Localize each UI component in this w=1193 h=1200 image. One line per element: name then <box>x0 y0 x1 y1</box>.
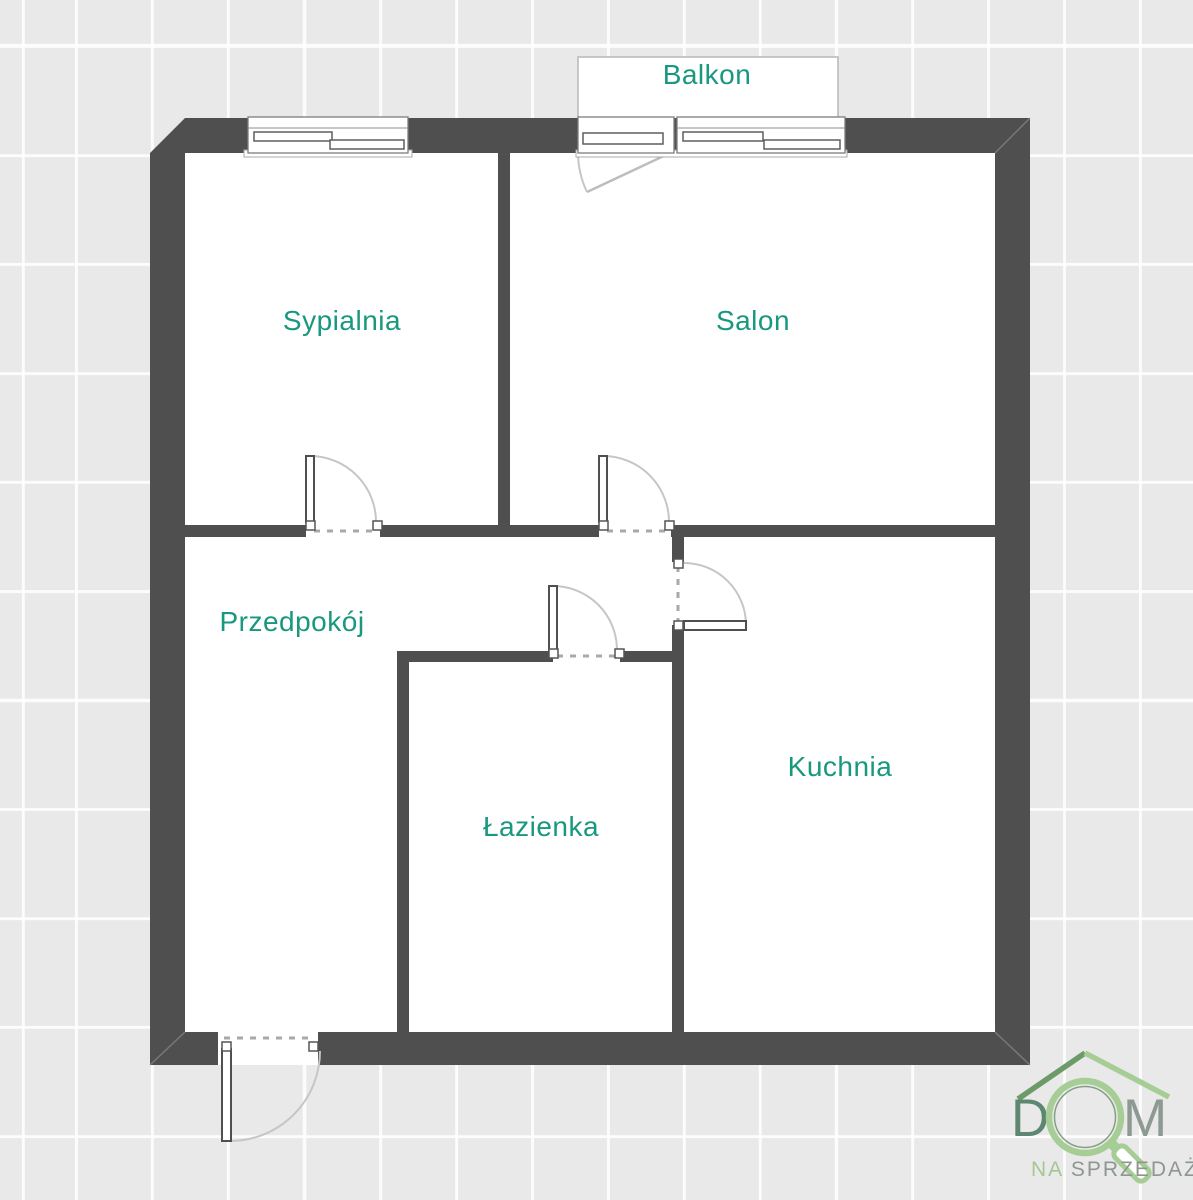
bedroom-window <box>244 117 412 157</box>
logo-tagline-rest: SPRZEDAŻ <box>1071 1158 1193 1181</box>
logo-tagline-na: NA <box>1031 1158 1063 1181</box>
logo-letter-m: M <box>1123 1089 1167 1148</box>
interior-floor <box>185 153 995 1032</box>
floorplan-canvas: Balkon Sypialnia Salon Przedpokój Łazien… <box>0 0 1193 1200</box>
room-label-kuchnia: Kuchnia <box>788 751 893 783</box>
bathroom-door-leaf <box>549 586 557 652</box>
room-label-przedpokoj: Przedpokój <box>219 606 364 638</box>
kitchen-door-leaf <box>684 621 746 630</box>
agency-logo: D M NA SPRZEDAŻ <box>1005 1040 1193 1200</box>
bedroom-door-leaf <box>306 456 314 522</box>
room-label-sypialnia: Sypialnia <box>283 305 401 337</box>
entrance-door-leaf <box>222 1049 231 1141</box>
room-label-lazienka: Łazienka <box>483 811 599 843</box>
room-label-balkon: Balkon <box>663 59 752 91</box>
logo-letter-d: D <box>1011 1089 1049 1148</box>
balcony-window <box>576 117 847 157</box>
livingroom-door-leaf <box>599 456 607 522</box>
floorplan-drawing <box>0 0 1193 1200</box>
logo-tagline: NA SPRZEDAŻ <box>1031 1158 1193 1182</box>
room-label-salon: Salon <box>716 305 790 337</box>
